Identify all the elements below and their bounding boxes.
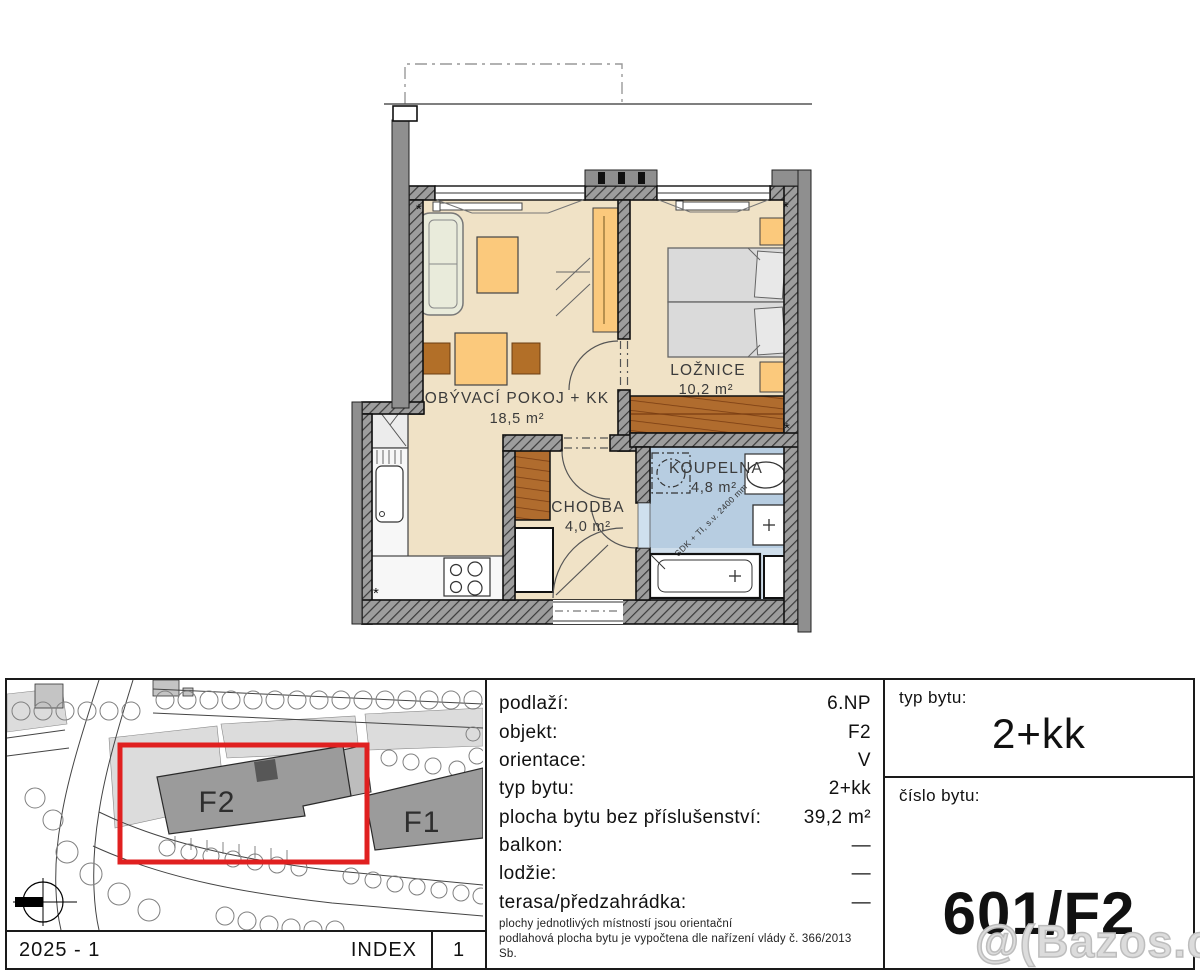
floor-plan-drawing: OBÝVACÍ POKOJ + KK 18,5 m² LOŽNICE 10,2 … (0, 0, 1200, 678)
pillow (754, 307, 785, 355)
living-room-area: 18,5 m² (490, 411, 545, 427)
kitchen-sink (376, 466, 403, 522)
building-f2-label: F2 (198, 786, 235, 819)
glazed-door-strip (638, 503, 650, 548)
dining-table (455, 333, 507, 385)
detail-row: balkon: — (499, 832, 871, 860)
detail-label: lodžie: (499, 863, 557, 885)
unit-type-box: typ bytu: 2+kk (885, 680, 1193, 778)
living-room-label: OBÝVACÍ POKOJ + KK (425, 390, 610, 407)
detail-label: objekt: (499, 722, 558, 744)
detail-label: plocha bytu bez příslušenství: (499, 807, 761, 829)
building-f1-label: F1 (403, 806, 440, 839)
unit-number-label: číslo bytu: (899, 786, 1179, 806)
curtain-rail (440, 203, 522, 210)
detail-label: typ bytu: (499, 778, 574, 800)
site-plan-svg: F2 F1 (7, 680, 483, 930)
footnotes: plochy jednotlivých místností jsou orien… (499, 917, 871, 962)
detail-value: F2 (848, 722, 871, 744)
detail-row: typ bytu: 2+kk (499, 775, 871, 803)
detail-label: podlaží: (499, 693, 569, 715)
site-plan-column: F2 F1 2025 - 1 INDEX 1 (7, 680, 487, 968)
revision-code: 2025 - 1 (7, 939, 351, 962)
floor-plan-svg: OBÝVACÍ POKOJ + KK 18,5 m² LOŽNICE 10,2 … (0, 0, 1200, 678)
site-plan-map: F2 F1 (7, 680, 485, 930)
bathroom-label: KOUPELNA (669, 460, 763, 477)
bathtub (650, 554, 760, 598)
detail-row: plocha bytu bez příslušenství: 39,2 m² (499, 804, 871, 832)
pillow (754, 251, 785, 299)
nightstand (760, 218, 786, 245)
index-label: INDEX (351, 939, 431, 962)
detail-label: terasa/předzahrádka: (499, 892, 687, 914)
footnote-line2: podlahová plocha bytu je vypočtena dle n… (499, 932, 871, 962)
nightstand (760, 362, 786, 392)
hall-furniture (513, 448, 553, 592)
detail-value: — (852, 863, 871, 885)
hall-area: 4,0 m² (565, 519, 611, 535)
unit-number-value: 601/F2 (899, 879, 1179, 948)
summary-column: typ bytu: 2+kk číslo bytu: 601/F2 (883, 680, 1193, 968)
revision-bar: 2025 - 1 INDEX 1 (7, 930, 485, 968)
shaft (515, 528, 553, 592)
bedroom-label: LOŽNICE (670, 362, 746, 379)
detail-row: podlaží: 6.NP (499, 690, 871, 718)
detail-value: V (858, 750, 871, 772)
unit-number-box: číslo bytu: 601/F2 (885, 778, 1193, 968)
detail-row: lodžie: — (499, 860, 871, 888)
detail-row: objekt: F2 (499, 718, 871, 746)
north-symbol (13, 878, 77, 926)
svg-text:*: * (784, 420, 790, 437)
detail-label: balkon: (499, 835, 563, 857)
svg-text:*: * (416, 201, 422, 218)
details-table: podlaží: 6.NP objekt: F2 orientace: V ty… (487, 680, 883, 968)
unit-type-label: typ bytu: (899, 688, 1179, 708)
chair (422, 343, 450, 374)
detail-value: — (852, 835, 871, 857)
wardrobe (593, 208, 618, 332)
detail-row: orientace: V (499, 747, 871, 775)
parking-ticks (175, 836, 287, 862)
info-panel: F2 F1 2025 - 1 INDEX 1 podlaží: 6.NP (5, 678, 1195, 970)
hall-label: CHODBA (551, 499, 625, 516)
index-value: 1 (431, 932, 485, 968)
shelf (683, 202, 749, 210)
upper-floor-dashed-outline (405, 64, 622, 104)
unit-type-value: 2+kk (899, 710, 1179, 758)
detail-value: — (852, 892, 871, 914)
bedroom-area: 10,2 m² (679, 382, 734, 398)
detail-label: orientace: (499, 750, 586, 772)
coffee-table (477, 237, 518, 293)
detail-value: 2+kk (829, 778, 871, 800)
detail-row: terasa/předzahrádka: — (499, 889, 871, 917)
svg-text:*: * (783, 199, 789, 216)
entrance-gap (553, 600, 623, 624)
footnote-line1: plochy jednotlivých místností jsou orien… (499, 917, 871, 932)
wardrobe (513, 448, 550, 520)
wall-step (393, 106, 417, 121)
detail-value: 39,2 m² (804, 807, 871, 829)
svg-text:*: * (373, 585, 379, 602)
unit-marker (254, 759, 278, 782)
detail-value: 6.NP (827, 693, 871, 715)
chair (512, 343, 540, 374)
